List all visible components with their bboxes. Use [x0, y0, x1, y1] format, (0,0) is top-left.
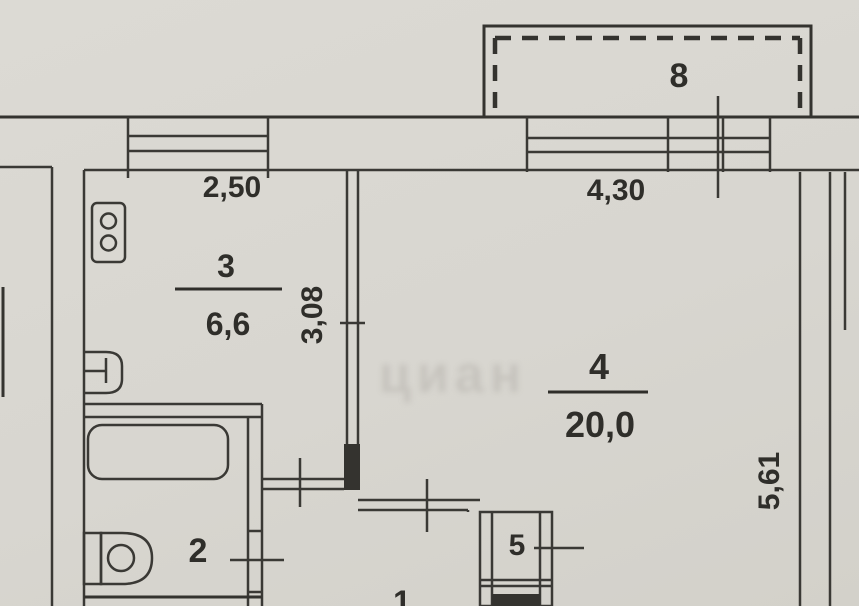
floor-plan-scan: циан — [0, 0, 859, 606]
room-label-bathroom: 2 — [189, 532, 208, 570]
living-room-window — [527, 96, 770, 198]
left-walls — [3, 167, 84, 606]
dim-living-window: 4,30 — [587, 174, 645, 207]
room-label-balcony: 8 — [670, 57, 689, 95]
dim-living-depth: 5,61 — [753, 452, 786, 510]
door-jamb — [344, 444, 360, 490]
room-label-closet: 5 — [509, 529, 526, 562]
kitchen-doorway — [262, 458, 344, 507]
bathroom-walls — [84, 417, 284, 606]
right-walls — [800, 172, 845, 606]
dim-kitchen-depth: 3,08 — [296, 286, 329, 344]
dimension-labels: 2,50 4,30 3,08 5,61 — [203, 171, 786, 510]
hall-living-wall — [358, 479, 480, 532]
dim-kitchen-window: 2,50 — [203, 171, 261, 204]
bathtub — [88, 425, 228, 479]
balcony-outline — [484, 26, 811, 117]
stove — [92, 203, 125, 262]
room-area-kitchen: 6,6 — [206, 306, 250, 342]
floor-plan-drawing: 2,50 4,30 3,08 5,61 8 3 6,6 4 20,0 2 5 1 — [0, 0, 859, 606]
room-label-hallway: 1 — [393, 584, 411, 606]
closet-walls — [480, 512, 584, 606]
room-label-kitchen: 3 — [217, 248, 235, 284]
room-labels: 8 3 6,6 4 20,0 2 5 1 — [175, 57, 688, 606]
sink — [84, 352, 122, 393]
room-area-living: 20,0 — [565, 404, 635, 445]
room-label-living: 4 — [589, 346, 609, 387]
toilet — [84, 533, 152, 584]
